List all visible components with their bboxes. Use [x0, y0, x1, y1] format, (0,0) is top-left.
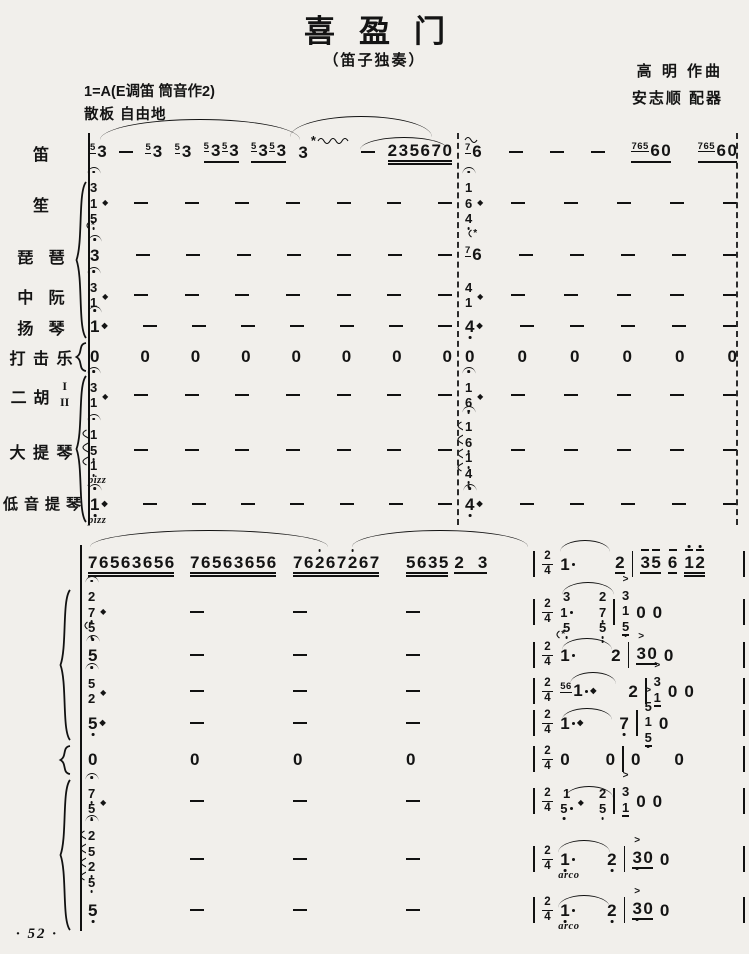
note: 0 — [570, 348, 579, 365]
fermata-icon — [85, 576, 98, 583]
note-digit: 7 — [88, 787, 95, 800]
system-brace — [74, 342, 87, 377]
measure-column: 5◆ — [88, 706, 186, 740]
note-digit: 3 — [258, 142, 267, 159]
note-digit: 4 — [465, 318, 474, 335]
note: 5 — [651, 554, 660, 571]
note-digit: 1 — [573, 682, 582, 699]
barline — [628, 642, 630, 668]
note-digit: 6 — [472, 143, 481, 160]
octave-dot — [623, 733, 626, 736]
note: 7 — [293, 554, 302, 571]
staff-row: 275◆24315275315>00 — [88, 588, 745, 636]
note-digit: 2 — [607, 851, 616, 868]
accent-mark: > — [623, 770, 629, 781]
note: 6 — [121, 554, 130, 571]
rest-dash — [723, 394, 737, 397]
measure-column — [293, 778, 401, 824]
measure-section: 151pizz — [90, 418, 452, 482]
note: 6 — [465, 436, 472, 449]
note: 5 — [439, 554, 448, 571]
note-digit: 1 — [90, 459, 97, 472]
measure-column: 5 — [88, 890, 186, 930]
note: 5 — [88, 902, 97, 919]
rest-dash — [185, 294, 199, 297]
note: 6 — [201, 554, 210, 571]
note: 0 — [643, 849, 652, 866]
diamond-mark: ◆ — [102, 393, 108, 401]
rest-dash — [511, 294, 525, 297]
note: 0 — [636, 793, 645, 810]
note-digit: 5 — [439, 554, 448, 571]
note-digit: 3> — [632, 849, 641, 866]
accent-mark: > — [634, 887, 640, 897]
note-digit: 5 — [88, 677, 95, 690]
rest-dash — [186, 254, 200, 257]
note: 5 — [88, 876, 95, 889]
note-digit: 6 — [465, 436, 472, 449]
rest-dash — [438, 449, 452, 452]
note-digit: 0 — [443, 348, 452, 365]
note-digit: 0 — [560, 751, 569, 768]
staff-row: 3*76* — [90, 236, 745, 274]
beam-group: 3>0 — [632, 900, 652, 921]
staff-row: 5◆241◆7515>0 — [88, 706, 745, 740]
rest-dash — [723, 294, 737, 297]
note: 0 — [653, 604, 662, 621]
chord: 31> — [622, 785, 629, 817]
octave-dot — [611, 920, 614, 923]
note-digit: 0 — [293, 751, 302, 768]
measure-column: 2525 — [88, 826, 186, 892]
note-digit: 3 — [90, 181, 97, 194]
instrument-label: 琵琶 — [2, 244, 80, 268]
note-digit: 6 — [121, 554, 130, 571]
technique-label: arco — [558, 871, 579, 882]
note: 5 — [599, 621, 606, 634]
note: 2 — [348, 554, 357, 571]
note-digit: 0 — [668, 683, 677, 700]
measure-section: 16◆ — [465, 374, 737, 416]
measure-column: 5* — [88, 636, 186, 674]
octave-dot — [688, 545, 691, 548]
rest-dash — [185, 394, 199, 397]
note-digit: 3 — [90, 281, 97, 294]
rest-dash — [672, 503, 686, 506]
octave-dot — [91, 920, 94, 923]
rest-dash — [438, 394, 452, 397]
rest-dash — [235, 294, 249, 297]
rest-dash — [190, 800, 204, 803]
measure-column — [190, 826, 285, 892]
note: 5* — [88, 647, 97, 664]
rest-dash — [406, 611, 420, 614]
note: 0 — [241, 348, 250, 365]
note: 7 — [190, 554, 199, 571]
note-digit: 6 — [165, 554, 174, 571]
note-digit: 0 — [660, 902, 669, 919]
rest-dash — [389, 325, 403, 328]
rest-dash — [564, 294, 578, 297]
note-digit: 7 — [88, 554, 97, 571]
note-digit: 6 — [304, 554, 313, 571]
chord-stack: 16 — [465, 381, 472, 410]
note: 1 — [465, 451, 472, 464]
note: 4◆ — [465, 318, 483, 335]
note: 0 — [636, 604, 645, 621]
rest-dash — [570, 254, 584, 257]
measure-column — [293, 890, 401, 930]
note-digit: 6 — [245, 554, 254, 571]
time-sig-denominator: 4 — [544, 565, 550, 578]
fermata-icon — [462, 167, 475, 174]
time-sig-numerator: 2 — [542, 845, 553, 859]
measure-column — [406, 778, 538, 824]
note: 53 — [269, 142, 286, 160]
instrument-label-char: 二 — [11, 384, 27, 408]
note-digit: 0 — [406, 751, 415, 768]
measure-column — [190, 706, 285, 740]
note: 1 — [465, 420, 472, 433]
system-brace — [58, 589, 71, 746]
diamond-mark: ◆ — [477, 199, 483, 207]
note-digit: 1 — [654, 691, 661, 704]
note: 0 — [140, 348, 149, 365]
barline — [613, 599, 615, 625]
beam-group: 76563656 — [190, 554, 276, 575]
note: 7 — [88, 554, 97, 571]
note: 7 — [337, 554, 346, 571]
rest-dash — [134, 294, 148, 297]
note: 0 — [518, 348, 527, 365]
instrument-label-char: 低 — [3, 493, 18, 514]
barline — [743, 897, 745, 923]
octave-dot — [91, 733, 94, 736]
note: 6 — [359, 554, 368, 571]
note: 4 — [465, 212, 472, 225]
staff-row: 1◆4◆ — [90, 310, 745, 342]
chord-stack: 41 — [465, 281, 472, 310]
note-digit: 6 — [143, 554, 152, 571]
time-sig-denominator: 4 — [544, 613, 550, 626]
page-number: · 52 · — [16, 926, 58, 943]
instrument-label: 中阮 — [2, 284, 80, 308]
note-digit: 0 — [342, 348, 351, 365]
chord-stack: 52 — [88, 677, 95, 706]
note: 1 — [465, 296, 472, 309]
note: 5 — [560, 802, 573, 815]
grace-notes: 7 — [465, 246, 471, 257]
note-digit: 0 — [684, 683, 693, 700]
rest-dash — [286, 394, 300, 397]
time-sig-numerator: 2 — [542, 550, 553, 564]
barline — [743, 846, 745, 872]
measure-column — [190, 588, 285, 636]
rest-dash — [293, 611, 307, 614]
note: 3 — [234, 554, 243, 571]
beam-group: 3>0 — [632, 849, 652, 870]
note: 6 — [267, 554, 276, 571]
rest-dash — [723, 254, 737, 257]
note-digit: 1 — [560, 556, 569, 573]
rest-dash — [621, 254, 635, 257]
rest-dash — [617, 449, 631, 452]
key-signature: 1=A(E调笛 筒音作2) — [84, 80, 215, 101]
note-digit: 3 — [153, 143, 162, 160]
staff-row: 2525241arco23>00 — [88, 826, 745, 892]
rest-dash — [237, 254, 251, 257]
note: 0 — [660, 902, 669, 919]
note-digit: 0 — [661, 142, 670, 159]
time-sig-denominator: 4 — [544, 760, 550, 773]
rest-dash — [190, 722, 204, 725]
score-page: 喜盈门 （笛子独奏） 高 明 作曲 安志顺 配器 1=A(E调笛 筒音作2) 散… — [0, 0, 749, 954]
measure-column — [406, 636, 538, 674]
rest-dash — [511, 202, 525, 205]
note: 1 — [465, 181, 472, 194]
time-sig-denominator: 4 — [544, 802, 550, 815]
measure-column: 75◆ — [88, 778, 186, 824]
rest-dash — [235, 449, 249, 452]
rest-dash — [389, 503, 403, 506]
note-digit: 5 — [645, 731, 652, 744]
chord: 2525 — [88, 829, 95, 889]
note: 3 — [132, 554, 141, 571]
note: 561◆ — [560, 682, 596, 700]
rest-dash — [438, 294, 452, 297]
rest-dash — [670, 202, 684, 205]
note: 0 — [88, 751, 97, 768]
note: 7 — [88, 787, 95, 800]
note-digit: 6 — [650, 142, 659, 159]
note: 6 — [465, 197, 472, 210]
rest-dash — [290, 503, 304, 506]
metered-section: 2415◆2531>00 — [533, 778, 745, 824]
note-digit: 6 — [201, 554, 210, 571]
beam-group: 5353 — [251, 142, 286, 163]
metered-section: 241◆7515>0 — [533, 706, 745, 740]
system-brace — [74, 375, 87, 528]
rest-dash — [290, 325, 304, 328]
augmentation-dot — [570, 611, 573, 614]
instrument-label: 低音提琴 — [2, 493, 82, 514]
piece-title: 喜盈门 — [0, 6, 749, 51]
note: 2 — [454, 554, 463, 571]
note-digit: 5 — [212, 554, 221, 571]
note: 2 — [615, 554, 624, 575]
rest-dash — [406, 909, 420, 912]
rest-dash — [387, 294, 401, 297]
chord-stack: 164 — [465, 181, 472, 225]
note-digit: 6 — [99, 554, 108, 571]
note: 0 — [342, 348, 351, 365]
diamond-mark: ◆ — [102, 199, 108, 207]
measure-column: 0 — [190, 744, 285, 774]
note-digit: 1 — [465, 451, 472, 464]
note: 0 — [191, 348, 200, 365]
note: 5◆ — [88, 715, 106, 732]
measure-section: 1◆pizz — [90, 482, 452, 526]
beam-group: 76560 — [631, 142, 670, 163]
note: 1 — [622, 604, 629, 617]
dashed-barline — [457, 133, 459, 525]
note-digit: 0 — [90, 348, 99, 365]
note: 76 — [465, 143, 482, 161]
technique-label: arco — [558, 922, 579, 933]
note: 2 — [88, 860, 95, 873]
metered-section: 240000 — [533, 744, 745, 774]
rest-dash — [520, 503, 534, 506]
tenuto-bar — [652, 549, 660, 551]
instrument-label-char: 笙 — [33, 192, 49, 216]
beam-group: 76563656 — [88, 554, 174, 575]
octave-dot — [468, 514, 471, 517]
note: 6 — [245, 554, 254, 571]
diamond-mark: ◆ — [101, 322, 107, 330]
note-digit: 0 — [291, 348, 300, 365]
rest-dash — [723, 503, 737, 506]
fermata-icon — [463, 484, 476, 491]
rest-dash — [670, 394, 684, 397]
note: 0 — [684, 683, 693, 700]
note-digit: 6 — [359, 554, 368, 571]
augmentation-dot — [585, 690, 588, 693]
time-sig-denominator: 4 — [544, 656, 550, 669]
measure-column — [190, 778, 285, 824]
measure-column — [293, 826, 401, 892]
rest-dash — [406, 800, 420, 803]
grace-notes: 5 — [222, 142, 228, 153]
note-digit: 3 — [97, 143, 106, 160]
note: 4◆ — [465, 496, 483, 513]
accent-mark: > — [638, 632, 644, 642]
note-digit: 2 — [454, 554, 463, 571]
rest-dash — [621, 503, 635, 506]
fermata-icon — [462, 367, 475, 374]
instrument-label-char: 琶 — [49, 244, 65, 268]
note: 1 — [560, 556, 575, 573]
time-sig-denominator: 4 — [544, 724, 550, 737]
note-digit: 1 — [684, 554, 693, 571]
note: 0 — [647, 645, 656, 662]
note-digit: 5 — [651, 554, 660, 571]
note-digit: 0 — [88, 751, 97, 768]
note-digit: 0 — [241, 348, 250, 365]
time-sig-numerator: 2 — [542, 598, 553, 612]
chord-stack: 31 — [90, 381, 97, 410]
barline — [622, 746, 624, 772]
note-digit: 7 — [619, 715, 628, 732]
note: 2 — [611, 647, 620, 664]
note: 1◆pizz — [90, 496, 108, 513]
note: 3 — [640, 554, 649, 571]
chord: 52◆ — [88, 677, 95, 706]
grace-notes: 5 — [204, 142, 210, 153]
barline — [624, 846, 626, 872]
grace-notes: 5 — [251, 142, 257, 153]
instrument-label-char: 打 — [9, 345, 25, 369]
rest-dash — [511, 394, 525, 397]
note-digit: 2 — [315, 554, 324, 571]
staff-row: 0000240000 — [88, 744, 745, 774]
note-digit: 1 — [622, 604, 629, 617]
instrument-label-char: 胡 — [33, 384, 49, 408]
note: 7 — [370, 554, 379, 571]
chord: 315 — [560, 590, 573, 634]
diamond-mark: ◆ — [99, 719, 105, 727]
tremolo-roll-icon: * — [84, 621, 93, 634]
chord: 315> — [622, 589, 629, 636]
note-digit: 0 — [392, 348, 401, 365]
rest-dash — [564, 202, 578, 205]
note-digit: 3 — [182, 143, 191, 160]
tenuto-bar — [685, 549, 693, 551]
note-digit: 5 — [599, 802, 606, 815]
diamond-mark: ◆ — [102, 293, 108, 301]
rest-dash — [136, 254, 150, 257]
diamond-mark: ◆ — [577, 719, 583, 727]
beam-group: 5353 — [204, 142, 239, 163]
note-digit: 6 — [668, 554, 677, 571]
note: 4 — [465, 467, 472, 480]
note: 2 — [88, 590, 95, 603]
time-signature: 24 — [542, 677, 553, 704]
note-digit: 6 — [465, 197, 472, 210]
note: 6 — [326, 554, 335, 571]
rest-dash — [406, 722, 420, 725]
note-digit: 0 — [190, 751, 199, 768]
note-digit: 3> — [632, 900, 641, 917]
note: 5 — [256, 554, 265, 571]
barline — [533, 551, 535, 577]
beam-group: 5635 — [406, 554, 448, 575]
note: 0 — [674, 751, 683, 768]
instrument-label-char: 笛 — [33, 141, 49, 165]
chord: 16◆ — [465, 381, 472, 410]
barline — [533, 678, 535, 704]
rest-dash — [511, 449, 525, 452]
note-digit: 1 — [465, 181, 472, 194]
time-sig-numerator: 2 — [542, 677, 553, 691]
note-digit: 1 — [560, 851, 569, 868]
note-digit: 1 — [90, 197, 97, 210]
note: 3* — [90, 247, 99, 264]
rest-dash — [723, 449, 737, 452]
note-digit: 0 — [659, 715, 668, 732]
system-brace — [58, 745, 71, 780]
time-sig-numerator: 2 — [542, 641, 553, 655]
chord-stack: 1614 — [465, 420, 472, 480]
fermata-icon — [85, 815, 98, 822]
note-digit: 0 — [664, 647, 673, 664]
augmentation-dot — [572, 909, 575, 912]
rest-dash — [406, 690, 420, 693]
rest-dash — [617, 394, 631, 397]
note: 3> — [632, 849, 641, 866]
note-digit: 0 — [570, 348, 579, 365]
instrument-label-char: 中 — [17, 284, 33, 308]
octave-dot — [351, 549, 354, 552]
note-digit: 1 — [90, 396, 97, 409]
slur-arc — [90, 530, 328, 547]
chord: 31> — [654, 675, 661, 707]
grace-notes: 5 — [145, 143, 151, 154]
time-sig-denominator: 4 — [544, 860, 550, 873]
augmentation-dot — [570, 807, 573, 810]
staff-row: 315◆164◆ — [90, 180, 745, 226]
note: 0 — [90, 348, 99, 365]
rest-dash — [293, 800, 307, 803]
